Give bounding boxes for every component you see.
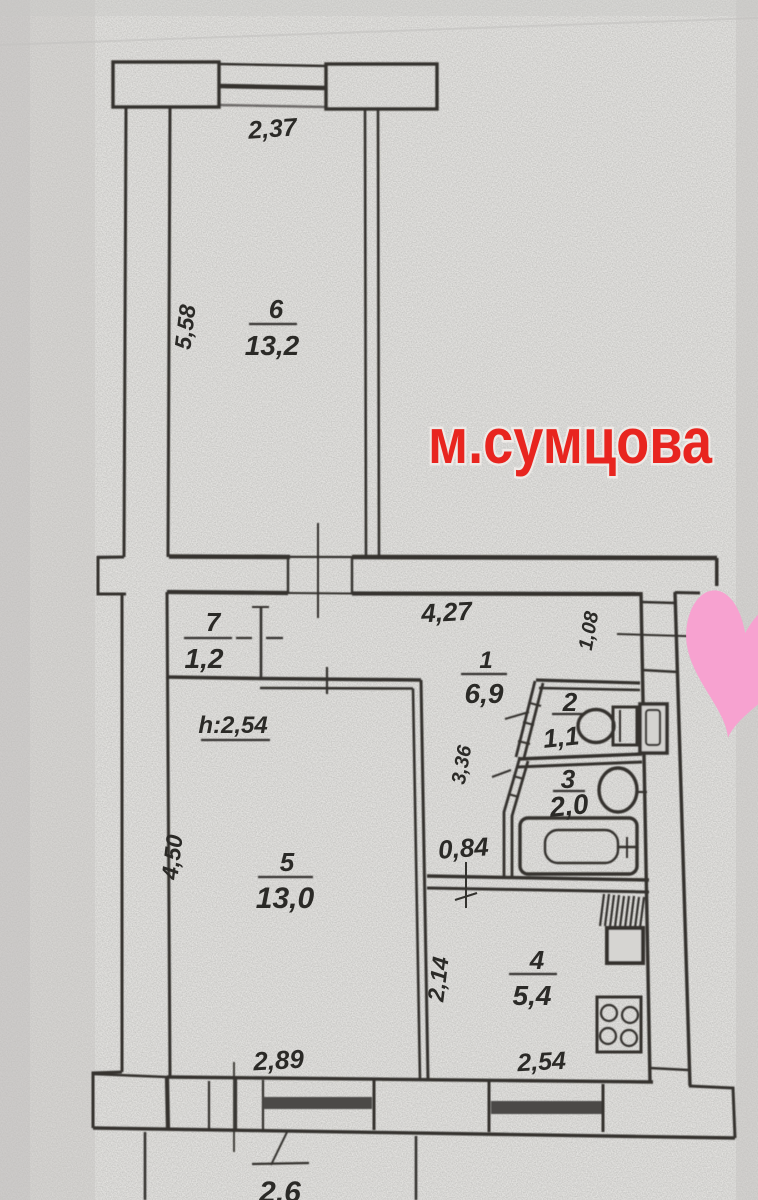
svg-text:5,58: 5,58 [169, 303, 200, 351]
svg-text:1,2: 1,2 [185, 643, 224, 674]
svg-text:2,0: 2,0 [547, 788, 590, 823]
svg-text:м.сумцова: м.сумцова [428, 405, 712, 477]
svg-text:2,54: 2,54 [516, 1047, 567, 1078]
svg-text:1,1: 1,1 [542, 720, 581, 754]
svg-text:2,37: 2,37 [246, 113, 299, 144]
svg-text:2: 2 [562, 687, 578, 717]
svg-text:5,4: 5,4 [513, 980, 552, 1011]
svg-text:1: 1 [479, 647, 492, 674]
svg-text:2,6: 2,6 [258, 1176, 301, 1200]
svg-text:6,9: 6,9 [465, 678, 504, 709]
svg-text:0,84: 0,84 [437, 831, 490, 864]
svg-text:4: 4 [529, 945, 545, 975]
svg-text:7: 7 [206, 607, 222, 637]
svg-text:4,50: 4,50 [156, 833, 187, 882]
svg-text:5: 5 [280, 847, 295, 877]
svg-text:h:2,54: h:2,54 [198, 712, 267, 739]
svg-text:2,14: 2,14 [422, 955, 453, 1004]
svg-text:13,2: 13,2 [245, 330, 300, 361]
svg-text:6: 6 [269, 294, 284, 324]
svg-text:2,89: 2,89 [251, 1044, 305, 1077]
svg-text:13,0: 13,0 [256, 882, 315, 915]
svg-text:4,27: 4,27 [419, 596, 474, 629]
